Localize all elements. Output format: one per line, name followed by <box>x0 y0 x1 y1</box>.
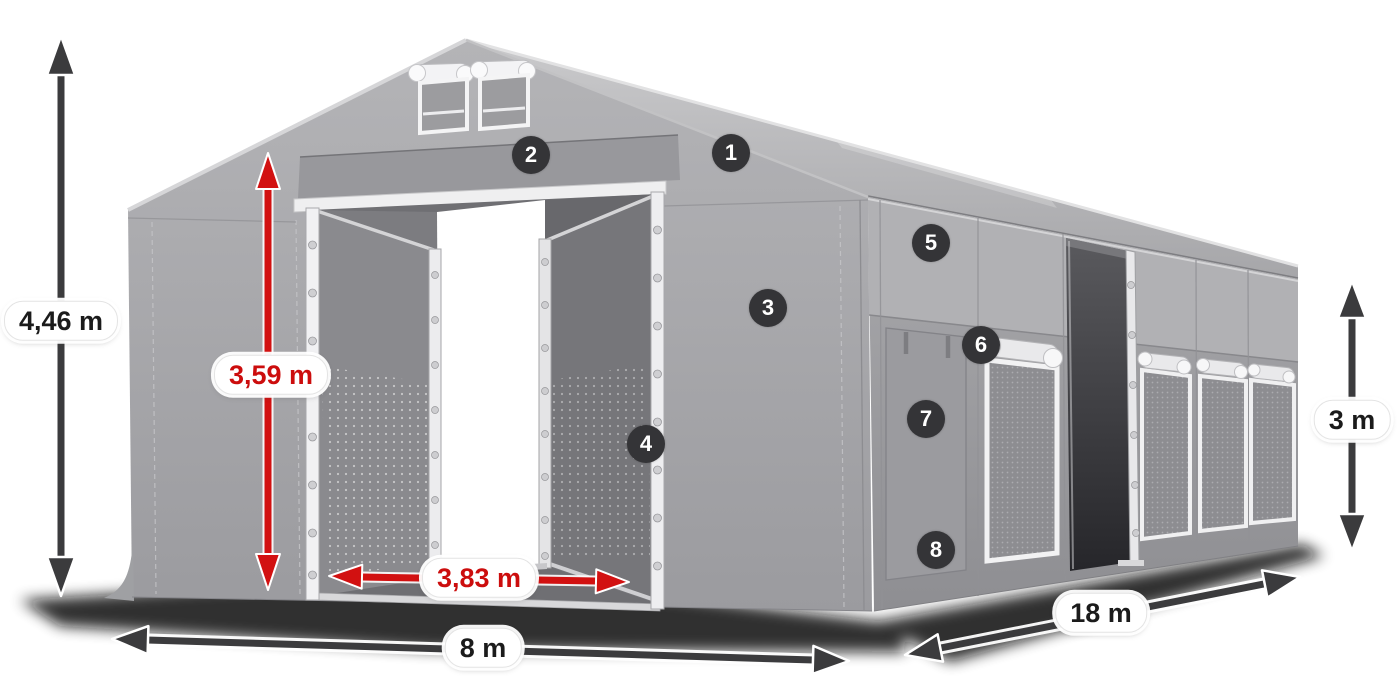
vent-window-2 <box>471 60 536 129</box>
side-window-front <box>982 337 1063 562</box>
feature-marker-1: 1 <box>712 134 750 172</box>
front-gate-opening <box>306 192 664 611</box>
tent-illustration <box>0 0 1400 700</box>
side-sliding-door-opening <box>1066 238 1144 571</box>
dimension-label-side-length: 18 m <box>1055 593 1147 633</box>
side-window-3 <box>1248 364 1295 523</box>
dimension-label-total-height: 4,46 m <box>4 301 118 341</box>
dimension-label-door-width: 3,83 m <box>422 558 536 598</box>
feature-marker-3: 3 <box>749 289 787 327</box>
feature-marker-4: 4 <box>627 425 665 463</box>
feature-marker-6: 6 <box>962 326 1000 364</box>
side-window-2 <box>1197 359 1248 532</box>
dimension-label-side-height: 3 m <box>1314 400 1391 440</box>
vent-window-1 <box>409 63 474 133</box>
feature-marker-7: 7 <box>907 400 945 438</box>
feature-marker-5: 5 <box>912 224 950 262</box>
tent-dimensions-diagram: 4,46 m 3,59 m 3,83 m 8 m 18 m 3 m 1 2 3 … <box>0 0 1400 700</box>
tarp-skirt <box>104 540 134 601</box>
side-window-1 <box>1138 352 1191 539</box>
feature-marker-2: 2 <box>512 136 550 174</box>
through-view <box>437 200 547 577</box>
dimension-label-door-height: 3,59 m <box>214 355 328 395</box>
dimension-label-front-width: 8 m <box>445 628 522 668</box>
feature-marker-8: 8 <box>917 531 955 569</box>
